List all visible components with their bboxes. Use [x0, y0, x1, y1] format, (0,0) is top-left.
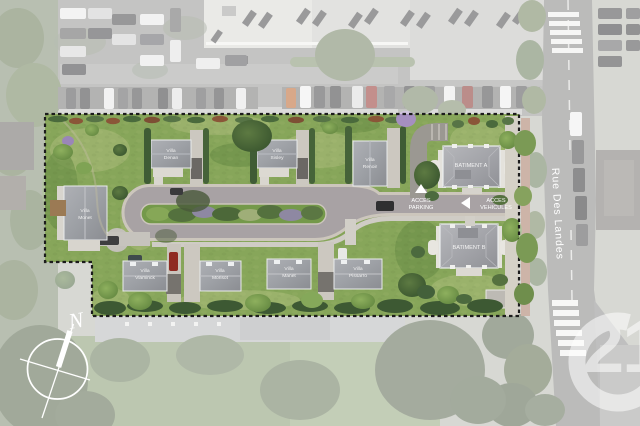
- svg-text:BATIMENT A: BATIMENT A: [455, 163, 488, 169]
- svg-text:Vlaminck: Vlaminck: [135, 275, 155, 281]
- svg-text:Villa: Villa: [166, 148, 175, 154]
- svg-text:ACCES: ACCES: [411, 198, 431, 204]
- svg-text:Villa: Villa: [284, 266, 293, 272]
- svg-text:Villa: Villa: [80, 208, 89, 214]
- svg-text:BATIMENT B: BATIMENT B: [452, 245, 485, 251]
- svg-text:ACCES: ACCES: [486, 198, 506, 204]
- svg-text:21: 21: [583, 305, 640, 388]
- svg-text:Monet: Monet: [78, 215, 92, 221]
- svg-text:Villa: Villa: [140, 268, 149, 274]
- svg-text:Villa: Villa: [272, 148, 281, 154]
- svg-text:Manet: Manet: [282, 273, 296, 279]
- svg-text:Pissarro: Pissarro: [349, 273, 367, 279]
- svg-text:Villa: Villa: [365, 157, 374, 163]
- svg-text:Morisot: Morisot: [212, 275, 229, 281]
- svg-text:Villa: Villa: [215, 268, 224, 274]
- svg-text:Sisley: Sisley: [270, 155, 284, 161]
- svg-text:PARKING: PARKING: [409, 205, 434, 211]
- svg-text:Renoir: Renoir: [363, 164, 378, 170]
- svg-text:Denan: Denan: [164, 155, 179, 161]
- svg-text:Villa: Villa: [353, 266, 362, 272]
- svg-text:VEHICULES: VEHICULES: [480, 205, 512, 211]
